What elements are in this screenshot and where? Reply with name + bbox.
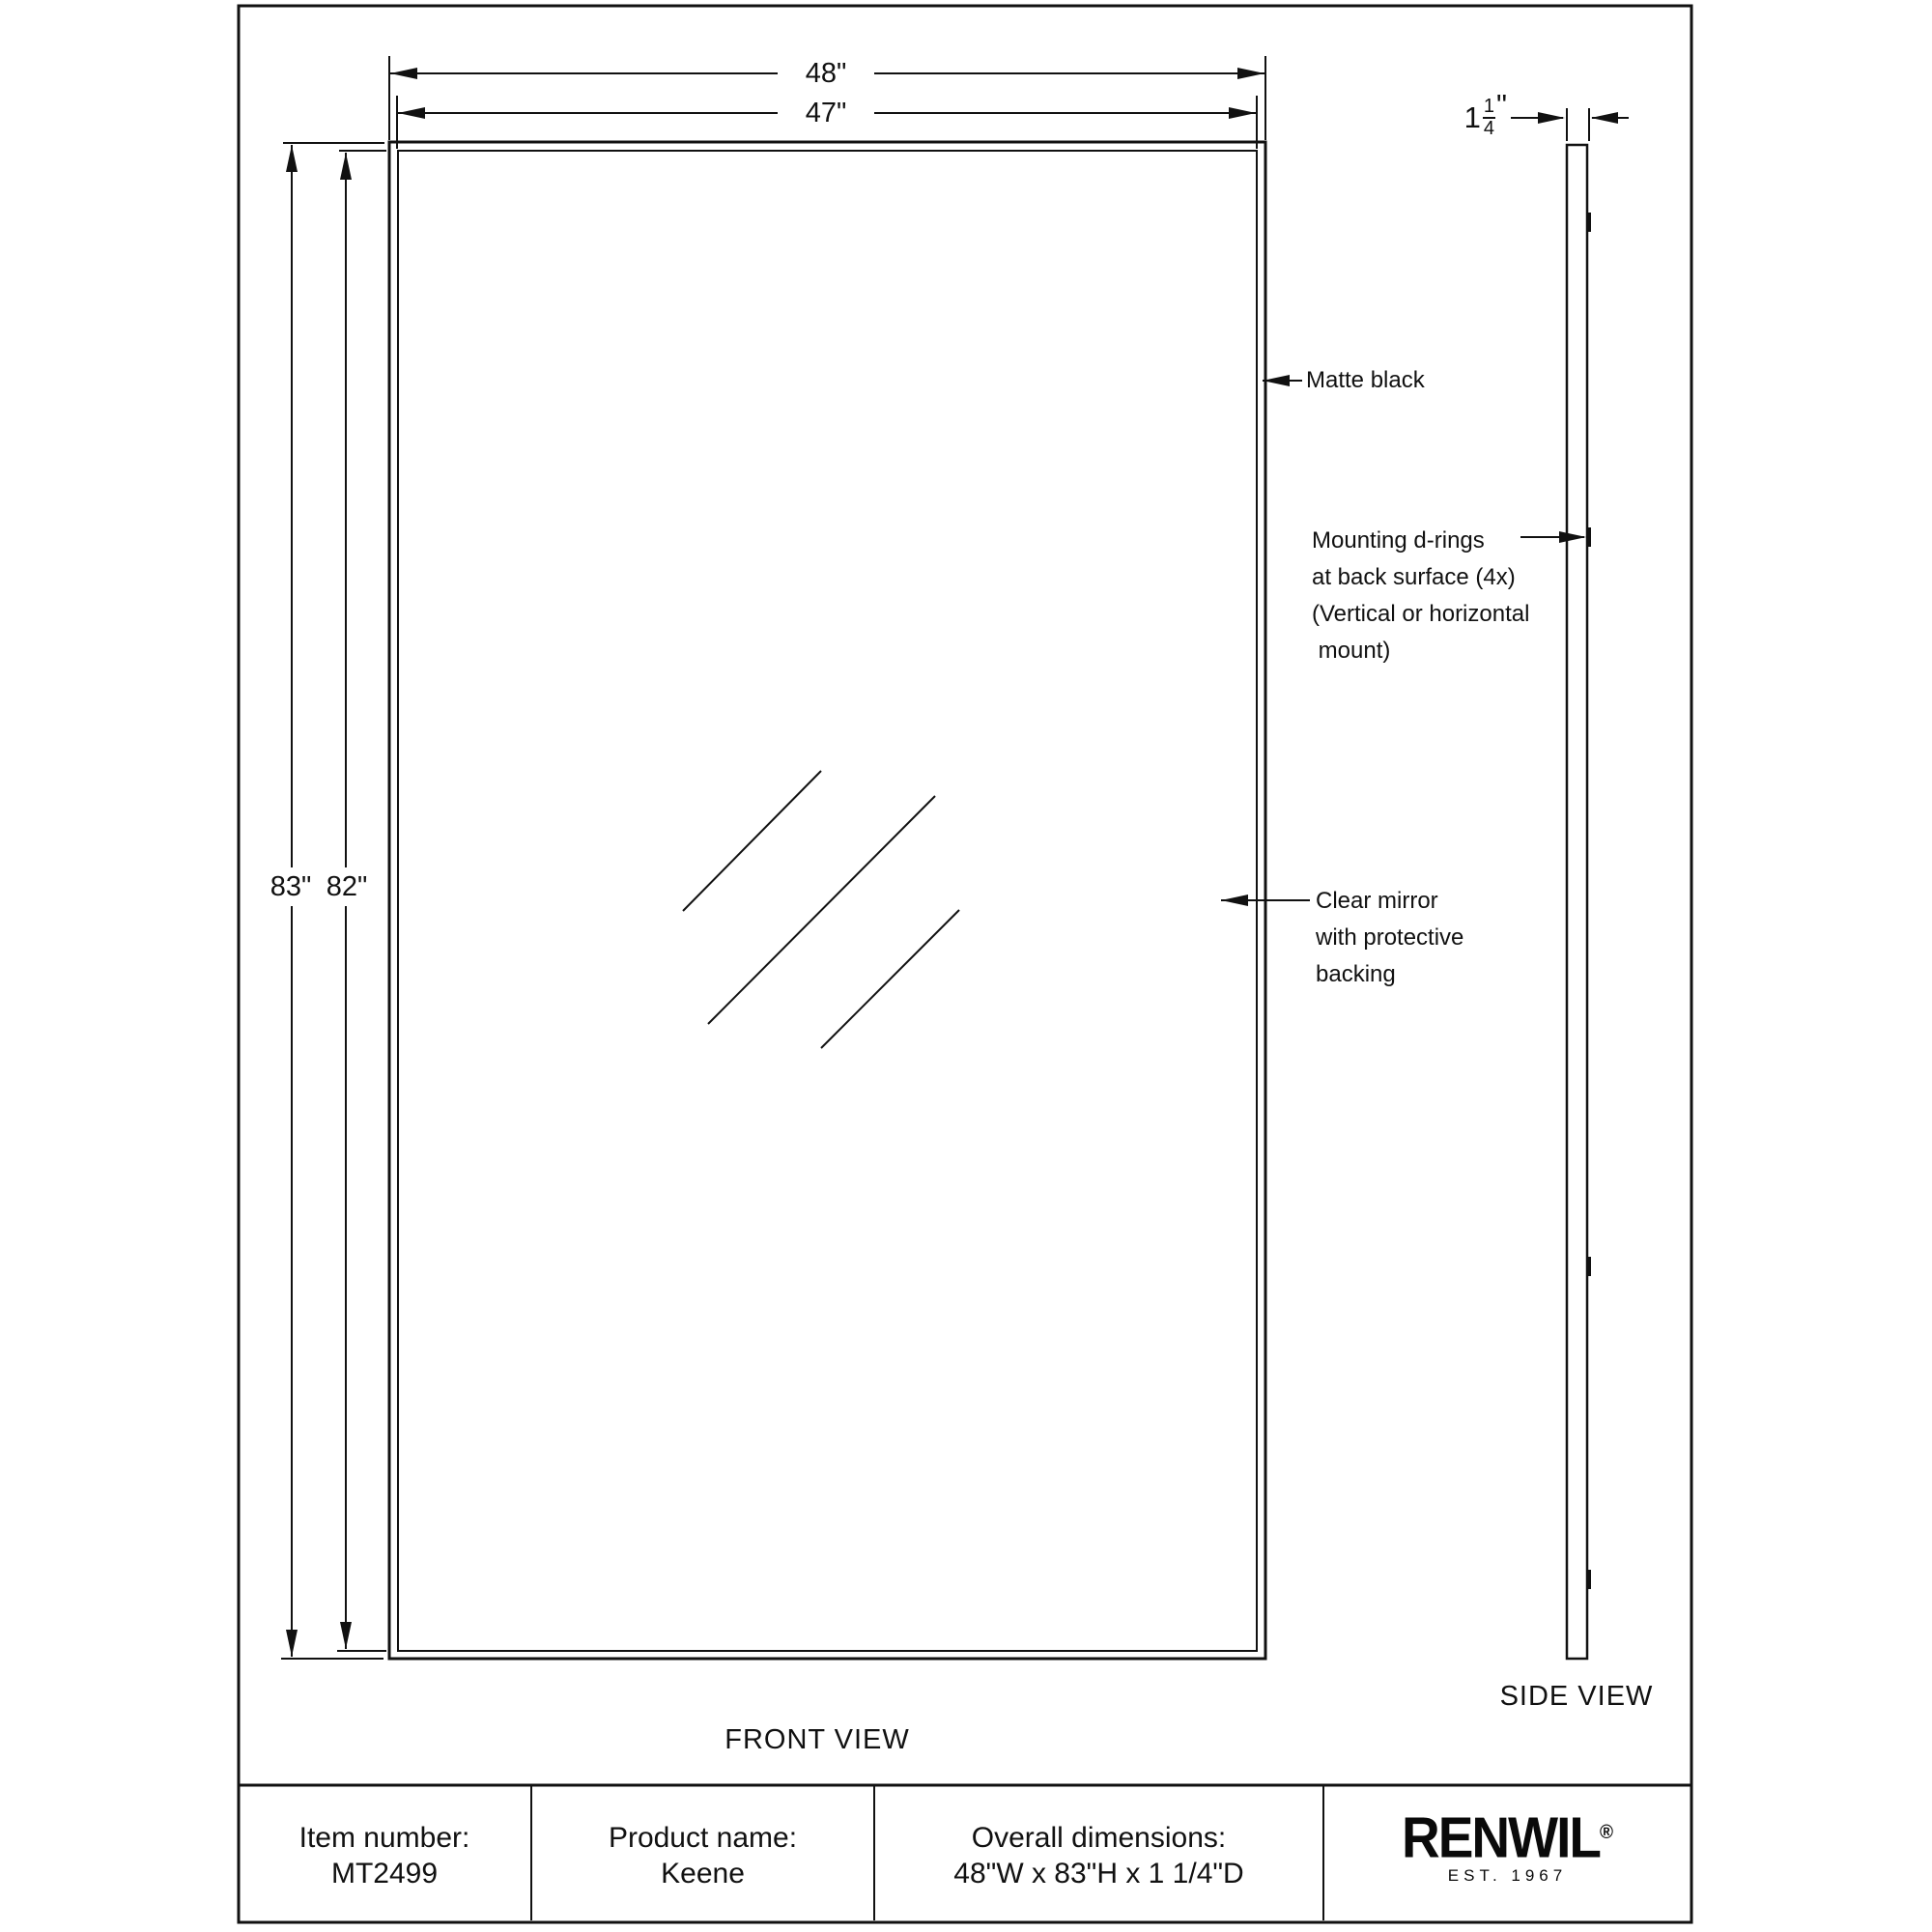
mirror-frame-outer: [389, 142, 1265, 1659]
annotation-mirror-line2: with protective: [1316, 920, 1463, 956]
annotation-mounting-line2: at back surface (4x): [1312, 559, 1529, 596]
spec-sheet: 48" 47" 83" 82" 114" Matte black Mountin…: [0, 0, 1932, 1932]
title-block-product-cell: Product name: Keene: [531, 1820, 874, 1891]
overall-dimensions-label: Overall dimensions:: [874, 1820, 1323, 1856]
dim-width-outer-label: 48": [778, 54, 874, 93]
mirror-glare-lines: [683, 771, 959, 1048]
annotation-frame-finish: Matte black: [1306, 362, 1425, 399]
front-view-drawing: [389, 142, 1265, 1659]
dimension-lines: [281, 56, 1629, 1659]
brand-name-text: RENWIL: [1402, 1805, 1600, 1870]
item-number-value: MT2499: [238, 1856, 531, 1891]
inch-mark: ": [1496, 88, 1507, 123]
side-view-caption: SIDE VIEW: [1432, 1681, 1721, 1713]
title-block-item-cell: Item number: MT2499: [238, 1820, 531, 1891]
annotation-mirror-line1: Clear mirror: [1316, 883, 1463, 920]
depth-fraction: 14: [1483, 97, 1495, 139]
annotation-mounting-line4: mount): [1312, 633, 1529, 669]
depth-whole: 1: [1464, 100, 1481, 135]
item-number-label: Item number:: [238, 1820, 531, 1856]
dim-height-inner-label: 82": [320, 867, 374, 906]
annotation-mounting: Mounting d-rings at back surface (4x) (V…: [1312, 523, 1529, 669]
dim-width-inner-label: 47": [778, 94, 874, 132]
annotation-mirror: Clear mirror with protective backing: [1316, 883, 1463, 993]
product-name-value: Keene: [531, 1856, 874, 1891]
brand-block: RENWIL® EST. 1967: [1323, 1808, 1691, 1886]
annotation-mounting-line1: Mounting d-rings: [1312, 523, 1529, 559]
title-block-dimensions-cell: Overall dimensions: 48"W x 83"H x 1 1/4"…: [874, 1820, 1323, 1891]
annotation-mirror-line3: backing: [1316, 956, 1463, 993]
product-name-label: Product name:: [531, 1820, 874, 1856]
drawing-linework: [0, 0, 1932, 1932]
dim-depth-label: 114": [1437, 91, 1507, 145]
page-border: [239, 6, 1691, 1922]
side-view-drawing: [1567, 145, 1591, 1659]
brand-logo: RENWIL®: [1402, 1806, 1613, 1864]
front-view-caption: FRONT VIEW: [672, 1724, 962, 1756]
overall-dimensions-value: 48"W x 83"H x 1 1/4"D: [874, 1856, 1323, 1891]
registered-mark: ®: [1600, 1822, 1613, 1844]
dim-height-outer-label: 83": [263, 867, 319, 906]
mirror-frame-inner: [398, 151, 1257, 1651]
annotation-mounting-line3: (Vertical or horizontal: [1312, 596, 1529, 633]
side-view-outline: [1567, 145, 1587, 1659]
arrowheads: [286, 68, 1618, 1657]
